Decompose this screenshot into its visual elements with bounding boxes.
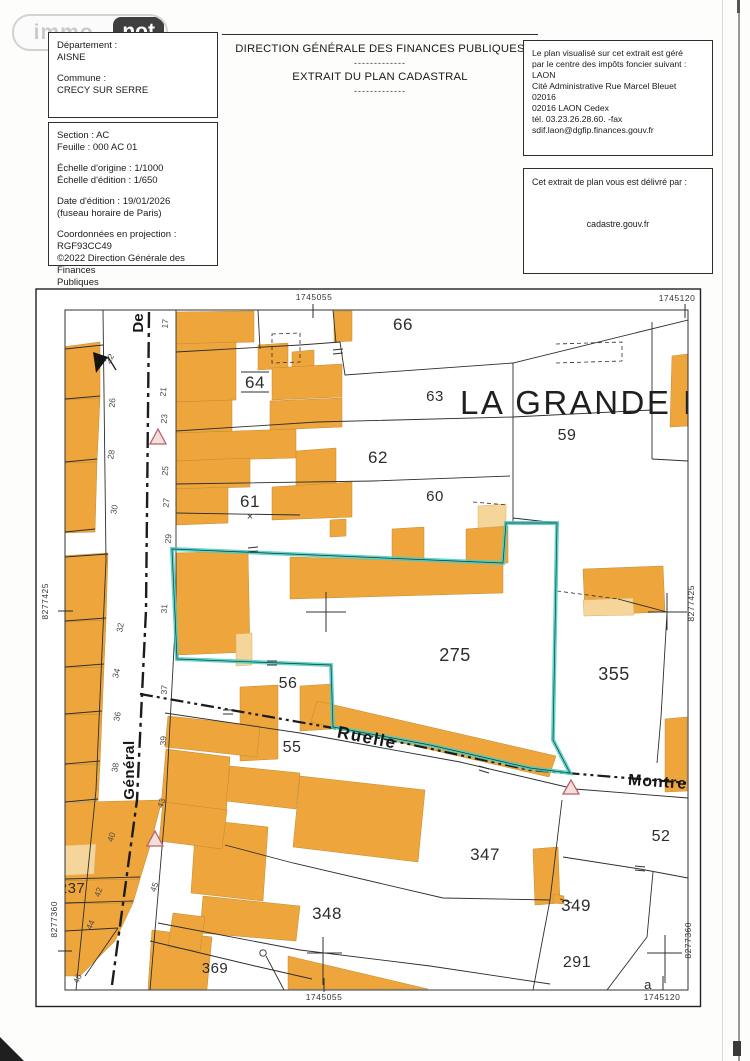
parcel-label: 291: [563, 954, 591, 971]
house-number: 38: [109, 762, 121, 773]
house-number: 30: [108, 504, 120, 515]
title-extrait: EXTRAIT DU PLAN CADASTRAL: [230, 71, 530, 83]
grid-coord-top-right: 1745120: [648, 293, 706, 303]
cadastre-site-label: cadastre.gouv.fr: [532, 218, 704, 230]
scan-corner-mark: [737, 0, 740, 13]
parcel-label: 61: [240, 492, 260, 511]
grid-coord-right-upper: 8277425: [686, 585, 696, 622]
cdif-cedex: 02016 LAON Cedex: [532, 103, 704, 114]
title-separator: -------------: [230, 57, 530, 69]
parcel-label: 66: [393, 315, 413, 334]
cdif-phone: tél. 03.23.26.28.60. -fax: [532, 114, 704, 125]
parcel-label: 275: [439, 645, 471, 665]
house-number: 25: [160, 465, 171, 476]
cdif-city: LAON: [532, 70, 704, 81]
delivery-box: Cet extrait de plan vous est délivré par…: [523, 168, 713, 274]
feuille-value: Feuille : 000 AC 01: [57, 142, 209, 154]
cadastral-map-svg: 6664636261605927535556553473483492915223…: [35, 288, 702, 1008]
departement-value: AISNE: [57, 52, 209, 64]
parcel-label: 64: [245, 373, 265, 392]
cdif-line: Le plan visualisé sur cet extrait est gé…: [532, 48, 704, 59]
parcel-x-symbol: ×: [247, 511, 253, 523]
house-number: 39: [158, 735, 169, 746]
house-number: 36: [111, 711, 123, 722]
parcel-label: 355: [598, 664, 630, 684]
street-name: Général: [121, 740, 138, 799]
parcel-label: 369: [202, 960, 229, 977]
street-name: De: [130, 313, 147, 332]
document-title: DIRECTION GÉNÉRALE DES FINANCES PUBLIQUE…: [222, 34, 538, 106]
copyright-line1: ©2022 Direction Générale des Finances: [57, 253, 209, 277]
house-number: 17: [160, 318, 171, 329]
grid-coord-bottom-right: 1745120: [633, 992, 691, 1002]
echelle-origine: Échelle d'origine : 1/1000: [57, 163, 209, 175]
cdif-postcode: 02016: [532, 92, 704, 103]
scan-fold-line: [722, 0, 723, 1061]
commune-label: Commune :: [57, 73, 209, 85]
parcel-label: 56: [279, 675, 298, 692]
cdif-address: Cité Administrative Rue Marcel Bleuet: [532, 81, 704, 92]
house-number: 32: [114, 622, 126, 633]
house-number: 23: [159, 413, 170, 424]
grid-coord-bottom-left: 1745055: [295, 992, 353, 1002]
scanned-cadastral-document: immo not Département : AISNE Commune : C…: [0, 0, 750, 1061]
parcel-label: 62: [368, 448, 388, 467]
commune-value: CRECY SUR SERRE: [57, 85, 209, 97]
scan-corner-mark: [0, 1037, 24, 1061]
title-dgfip: DIRECTION GÉNÉRALE DES FINANCES PUBLIQUE…: [230, 43, 530, 55]
plan-details-box: Section : AC Feuille : 000 AC 01 Échelle…: [48, 122, 218, 266]
house-number: 29: [163, 533, 174, 544]
cdif-email: sdif.laon@dgfip.finances.gouv.fr: [532, 125, 704, 136]
scan-edge-line: [738, 0, 740, 1061]
grid-coord-right-lower: 8277360: [683, 922, 693, 959]
parcel-label: 59: [558, 427, 577, 444]
house-number: 26: [107, 397, 118, 408]
grid-coord-top-left: 1745055: [285, 292, 343, 302]
street-name-major: LA GRANDE RUE: [460, 384, 702, 421]
cdif-line: par le centre des impôts foncier suivant…: [532, 59, 704, 70]
coordonnees-projection: Coordonnées en projection : RGF93CC49: [57, 229, 209, 253]
echelle-edition: Échelle d'édition : 1/650: [57, 175, 209, 187]
section-value: Section : AC: [57, 130, 209, 142]
fuseau-horaire: (fuseau horaire de Paris): [57, 208, 209, 220]
parcel-label: 52: [652, 828, 671, 845]
departement-label: Département :: [57, 40, 209, 52]
grid-coord-left-upper: 8277425: [40, 583, 50, 620]
delivery-title: Cet extrait de plan vous est délivré par…: [532, 176, 704, 188]
house-number: 37: [159, 684, 170, 695]
house-number: 28: [105, 449, 117, 460]
house-number: 21: [158, 386, 169, 397]
house-number: 27: [161, 497, 172, 508]
house-number: 31: [159, 603, 170, 614]
parcel-label: 347: [470, 845, 500, 864]
cdif-info-box: Le plan visualisé sur cet extrait est gé…: [523, 40, 713, 156]
title-separator: -------------: [230, 85, 530, 97]
date-edition: Date d'édition : 19/01/2026: [57, 196, 209, 208]
parcel-label: 349: [561, 896, 591, 915]
parcel-label: 60: [426, 488, 444, 505]
parcel-label: 55: [283, 739, 302, 756]
commune-info-box: Département : AISNE Commune : CRECY SUR …: [48, 32, 218, 118]
scan-corner-mark: [733, 1041, 741, 1056]
parcel-label: 63: [426, 388, 444, 405]
parcel-label: 348: [312, 904, 342, 923]
grid-coord-left-lower: 8277360: [49, 901, 59, 938]
